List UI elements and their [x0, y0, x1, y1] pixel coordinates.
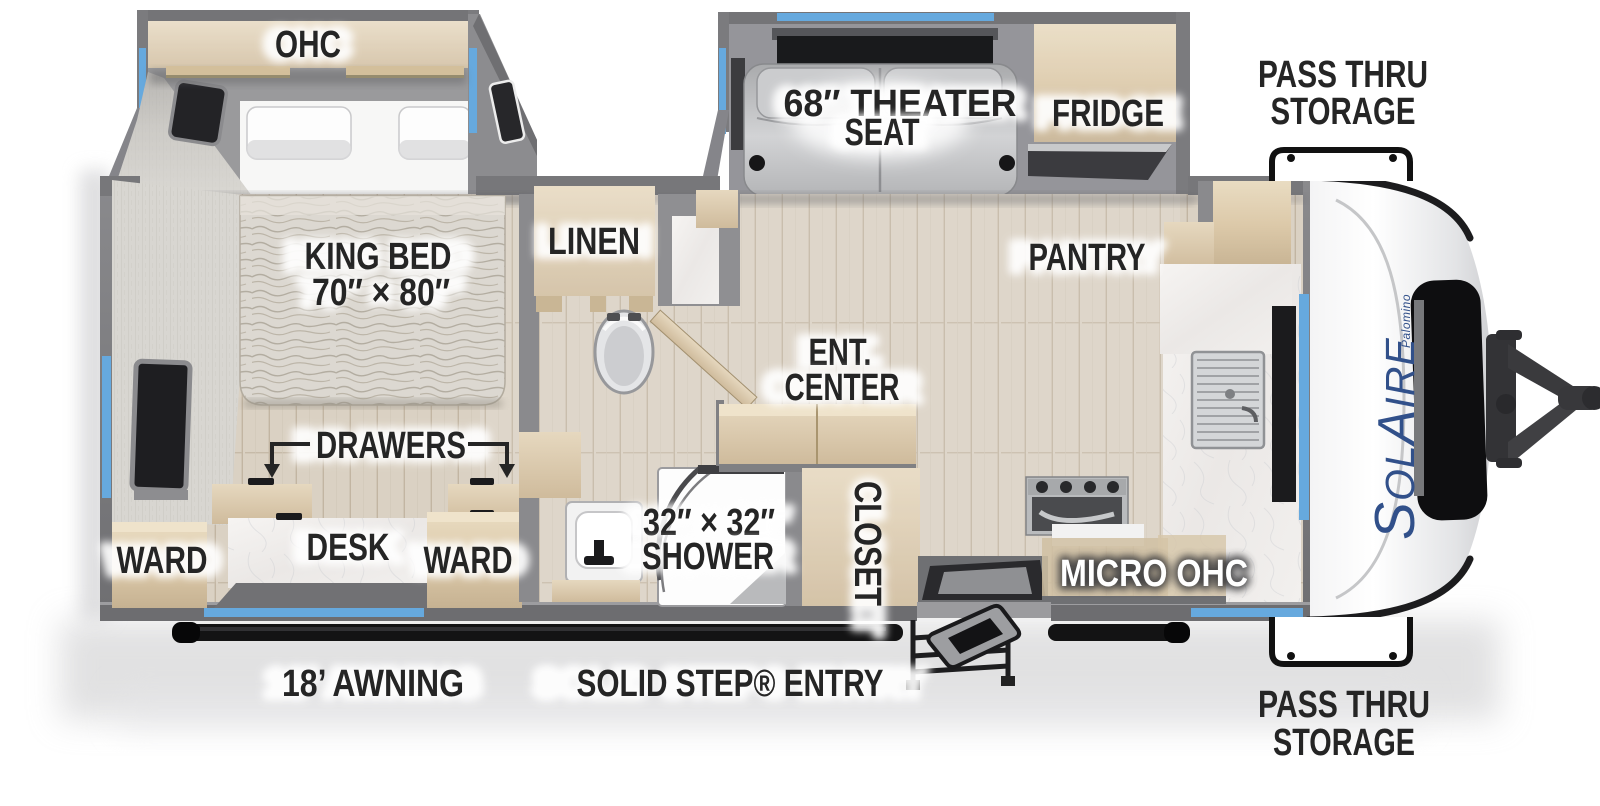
svg-text:70″ × 80″: 70″ × 80″: [312, 272, 450, 314]
svg-text:FRIDGE: FRIDGE: [1052, 93, 1164, 135]
svg-text:PASS THRU: PASS THRU: [1258, 54, 1428, 96]
svg-text:SHOWER: SHOWER: [642, 536, 774, 578]
svg-text:Palomino: Palomino: [1399, 294, 1413, 348]
svg-text:CLOSET: CLOSET: [846, 481, 888, 606]
svg-text:WARD: WARD: [117, 540, 208, 582]
svg-text:MICRO OHC: MICRO OHC: [1060, 553, 1248, 595]
svg-text:DESK: DESK: [307, 527, 390, 569]
svg-text:DRAWERS: DRAWERS: [316, 425, 466, 467]
svg-text:CENTER: CENTER: [785, 367, 900, 409]
svg-text:SEAT: SEAT: [845, 112, 920, 154]
svg-text:STORAGE: STORAGE: [1273, 722, 1415, 764]
svg-text:PASS THRU: PASS THRU: [1258, 684, 1430, 726]
svg-text:LINEN: LINEN: [548, 221, 640, 263]
svg-text:STORAGE: STORAGE: [1271, 91, 1416, 133]
svg-text:PANTRY: PANTRY: [1029, 237, 1146, 279]
svg-text:WARD: WARD: [424, 540, 513, 582]
svg-text:OHC: OHC: [275, 24, 341, 66]
svg-text:SOLID STEP® ENTRY: SOLID STEP® ENTRY: [577, 663, 884, 705]
svg-text:18’ AWNING: 18’ AWNING: [282, 663, 464, 705]
